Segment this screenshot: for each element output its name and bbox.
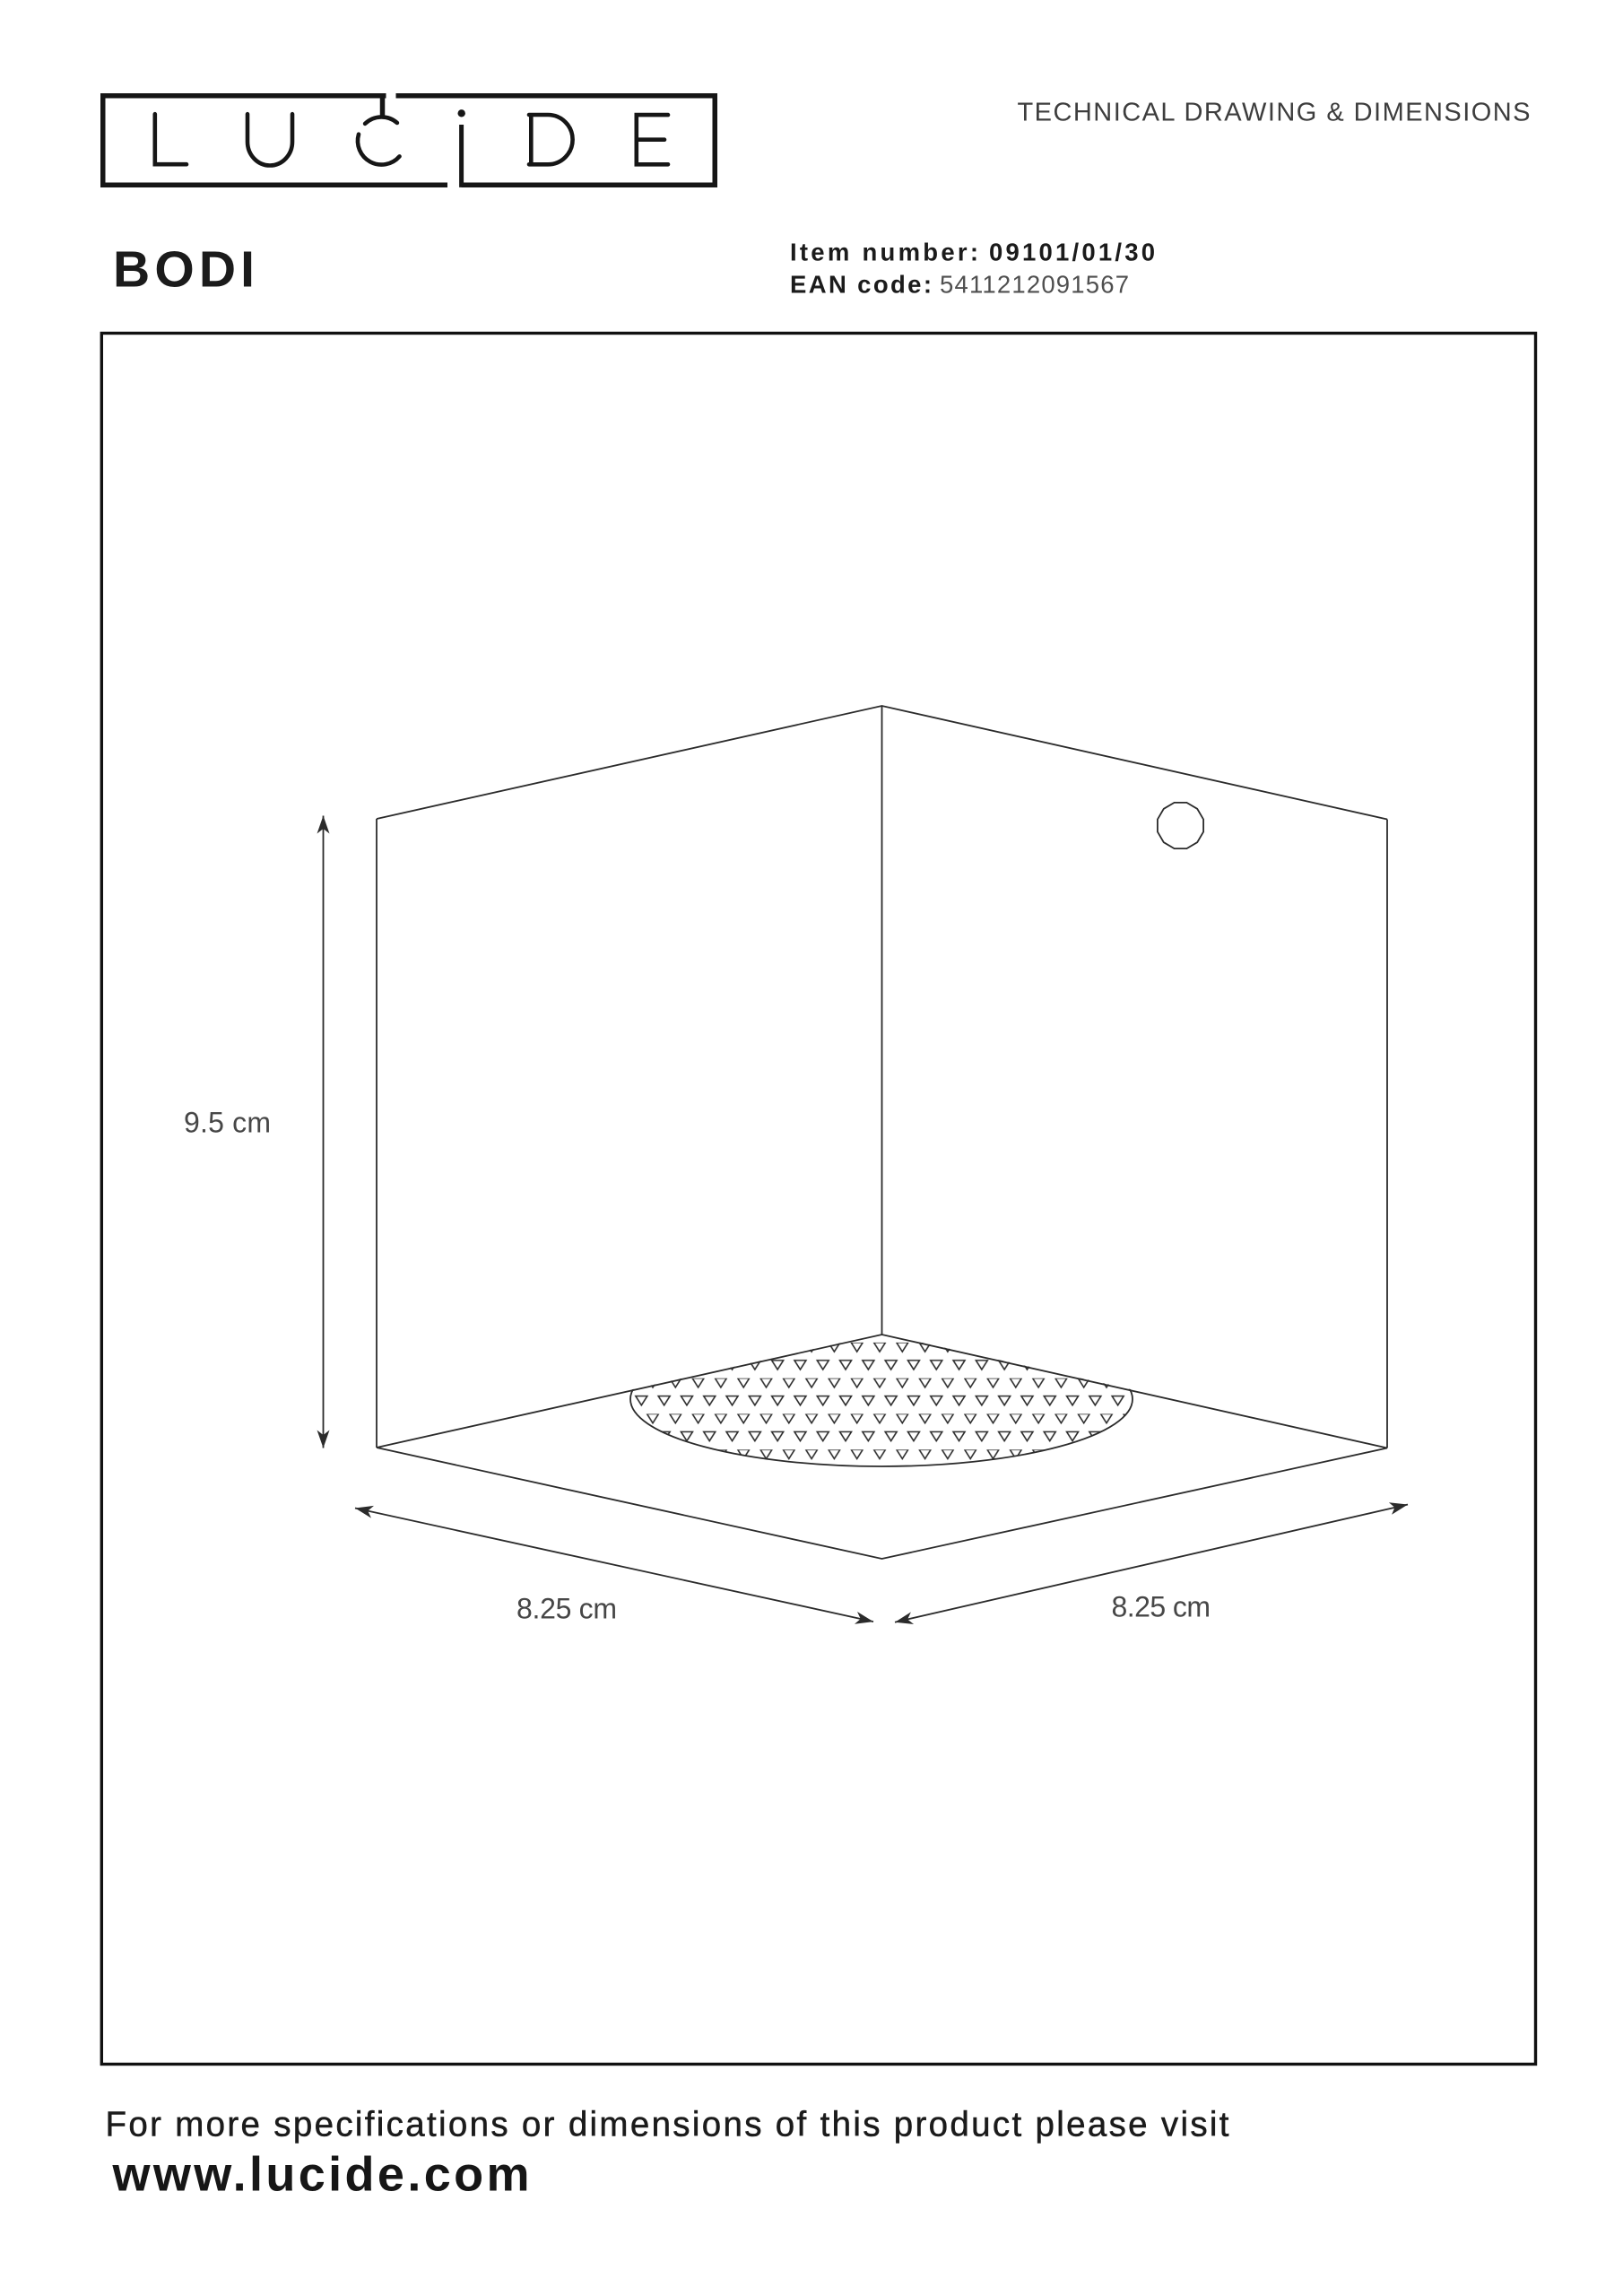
svg-text:5411212091567: 5411212091567 bbox=[940, 271, 1129, 299]
svg-text:8.25 cm: 8.25 cm bbox=[516, 1593, 617, 1625]
svg-text:9.5 cm: 9.5 cm bbox=[184, 1107, 271, 1139]
svg-text:TECHNICAL DRAWING & DIMENSIONS: TECHNICAL DRAWING & DIMENSIONS bbox=[1018, 99, 1531, 127]
svg-text:For more specifications or dim: For more specifications or dimensions of… bbox=[106, 2106, 1229, 2144]
svg-text:EAN code:: EAN code: bbox=[790, 271, 932, 299]
svg-text:www.lucide.com: www.lucide.com bbox=[112, 2148, 530, 2202]
svg-text:BODI: BODI bbox=[113, 241, 255, 299]
svg-text:8.25 cm: 8.25 cm bbox=[1112, 1591, 1211, 1623]
svg-text:Item number:: Item number: bbox=[790, 239, 978, 266]
svg-text:09101/01/30: 09101/01/30 bbox=[989, 239, 1155, 266]
